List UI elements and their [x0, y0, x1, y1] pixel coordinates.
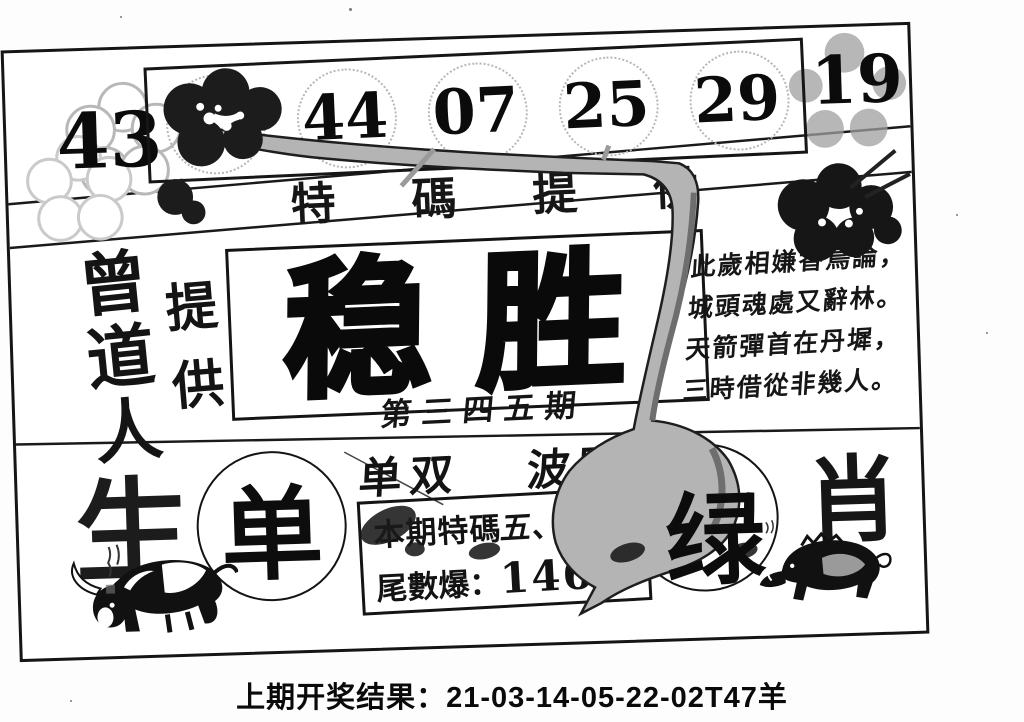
number-cell: 07	[413, 54, 538, 167]
scan-speckle	[986, 332, 988, 334]
boar-ink-painting	[751, 525, 908, 610]
number-19: 19	[810, 39, 904, 120]
tip-sheet-card: 43 17 44 07 25 29 19 特 碼 提 供 曾道人 提供 稳胜 第…	[1, 22, 930, 662]
number-29: 29	[692, 60, 782, 137]
tip-line-2: 尾數爆：146	[375, 547, 639, 610]
number-07: 07	[431, 72, 521, 149]
number-44: 44	[300, 78, 390, 155]
tip-line2-sep: ：	[468, 565, 501, 603]
previous-draw-result: 上期开奖结果：21-03-14-05-22-02T47羊	[0, 674, 1024, 716]
special-code-tip-box: 本期特碼五、一門, 尾數爆：146	[357, 486, 653, 616]
tip-line1-handwritten: 五、一門,	[498, 495, 643, 548]
twig	[850, 150, 911, 198]
subtitle-char: 碼	[410, 162, 458, 229]
tip-line2-label: 尾數爆	[376, 567, 471, 608]
bud-stem	[177, 179, 184, 205]
main-title: 稳胜	[263, 242, 672, 407]
number-cell: 17	[152, 66, 277, 179]
subtitle-char: 特	[289, 167, 337, 234]
tail-number-value: 146	[499, 549, 595, 603]
lottery-tip-sheet-page: 43 17 44 07 25 29 19 特 碼 提 供 曾道人 提供 稳胜 第…	[0, 0, 1024, 722]
scan-speckle	[120, 16, 122, 18]
subtitle-char: 供	[652, 151, 700, 218]
subtitle-char: 提	[531, 157, 579, 224]
tip-line1-prefix: 本期特碼	[373, 511, 503, 554]
tip-line-1: 本期特碼五、一門,	[372, 496, 636, 555]
green-pick-char: 绿	[663, 458, 768, 606]
number-cell: 29	[675, 42, 800, 155]
provider-label-calligraphy: 提供	[147, 277, 235, 439]
scan-speckle	[956, 214, 958, 216]
tip-poem: 此歲相嫌香鳥論， 城頭魂處又辭林。 天箭彈首在丹墀， 三時借從非幾人。	[681, 233, 929, 412]
number-25: 25	[562, 66, 652, 143]
issue-number: 第三四五期	[379, 379, 588, 434]
blossom-stamens	[818, 208, 864, 229]
number-17: 17	[170, 84, 260, 161]
scan-speckle	[349, 8, 352, 11]
number-cell: 25	[544, 48, 669, 161]
ox-ink-painting	[65, 538, 240, 643]
number-cell: 44	[283, 60, 408, 173]
